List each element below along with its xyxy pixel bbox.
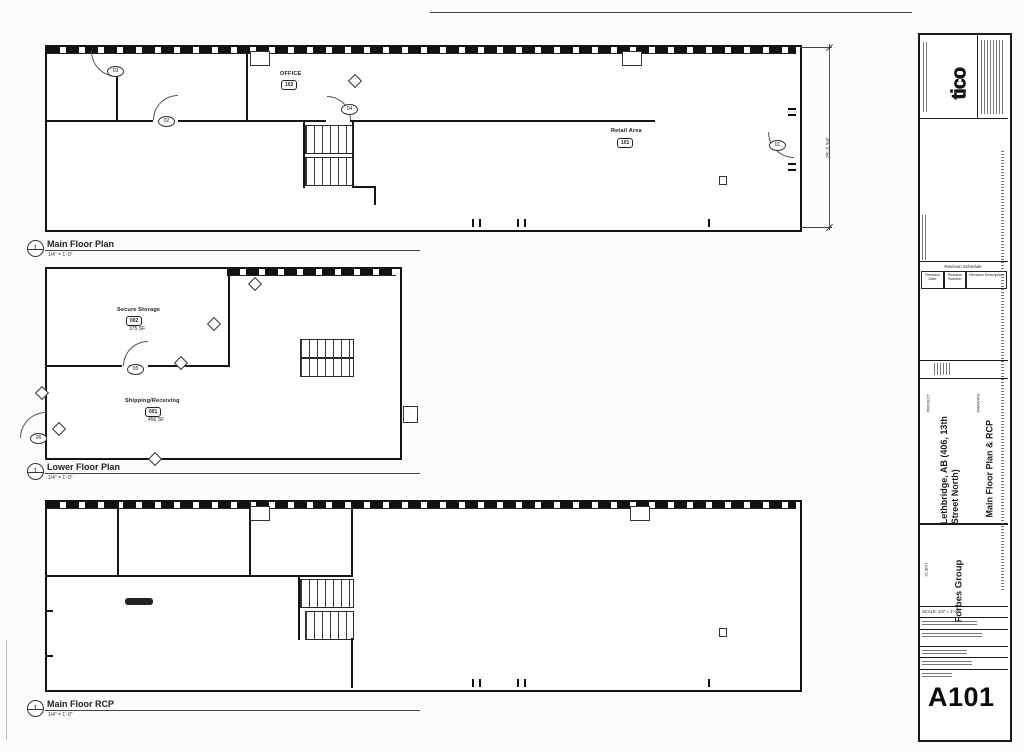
column-marker xyxy=(517,679,519,687)
revision-col-date: Revision Date xyxy=(921,271,944,289)
main-floor-plan-outline xyxy=(45,45,802,232)
revision-col-number: Revision Number xyxy=(944,271,966,289)
wall xyxy=(350,120,655,122)
scale-note: SCALE: 1/4" = 1'-0" xyxy=(922,609,1002,614)
column-marker xyxy=(524,219,526,227)
wall xyxy=(228,269,230,367)
column-marker xyxy=(788,108,796,110)
room-tag: 102 xyxy=(281,80,297,90)
exterior-wall-hatch xyxy=(227,269,396,276)
door-tag: 05 xyxy=(127,364,144,375)
title-block-divider xyxy=(918,657,1008,658)
view-scale: 1/4" = 1'-0" xyxy=(48,252,72,258)
revision-schedule-header: Revision Schedule xyxy=(920,264,1006,269)
stair-flight xyxy=(305,125,353,154)
fixture-symbol: · xyxy=(403,406,418,423)
column-marker xyxy=(472,219,474,227)
view-callout-circle: 1 xyxy=(27,240,44,257)
view-title-underline xyxy=(45,473,420,474)
room-tag: 001 xyxy=(145,407,161,417)
fine-print-row xyxy=(922,672,952,677)
door-tag: 01 xyxy=(769,140,786,151)
title-block-divider xyxy=(918,118,1008,119)
project-label: PROJECT xyxy=(926,383,931,413)
room-tag: 002 xyxy=(126,316,142,326)
door-tag: 03 xyxy=(107,66,124,77)
column-marker xyxy=(479,219,481,227)
door-tag: 04 xyxy=(341,104,358,115)
view-title-underline xyxy=(45,250,420,251)
wall xyxy=(351,502,353,576)
room-tag: 101 xyxy=(617,138,633,148)
wall xyxy=(246,47,248,122)
title-block-divider xyxy=(918,606,1008,607)
column-marker xyxy=(788,163,796,165)
ceiling-symbol xyxy=(719,176,727,185)
room-name: OFFICE xyxy=(280,71,301,77)
view-title: Main Floor Plan xyxy=(47,239,114,249)
view-callout-circle: 1 xyxy=(27,463,44,480)
title-block-divider xyxy=(918,646,1008,647)
ceiling-symbol xyxy=(719,628,727,637)
fine-print-row xyxy=(922,632,982,637)
title-block-divider xyxy=(918,523,1008,525)
stair-flight xyxy=(300,357,354,377)
column-marker xyxy=(788,169,796,171)
column-marker xyxy=(479,679,481,687)
closet-recess xyxy=(630,506,650,521)
title-block-divider xyxy=(918,629,1008,630)
wall xyxy=(117,502,119,576)
sheet-number: A101 xyxy=(928,682,995,713)
column-marker xyxy=(45,655,53,657)
sheet-border-left xyxy=(6,640,7,740)
stair-flight xyxy=(300,579,354,608)
column-marker xyxy=(708,679,710,687)
column-marker xyxy=(524,679,526,687)
room-area: 375 SF xyxy=(129,326,145,332)
fine-print-row xyxy=(922,649,967,654)
wall xyxy=(45,120,153,122)
closet-recess xyxy=(250,506,270,521)
stair-flight xyxy=(300,339,354,359)
fine-print-row xyxy=(922,660,972,665)
company-logo: tico xyxy=(949,40,972,100)
wall xyxy=(45,575,353,577)
view-callout-circle: 1 xyxy=(27,700,44,717)
wall xyxy=(374,186,376,205)
view-title: Lower Floor Plan xyxy=(47,462,120,472)
exterior-wall-hatch xyxy=(47,47,796,54)
room-name: Retail Area xyxy=(611,128,642,134)
door-tag: 02 xyxy=(158,116,175,127)
fine-print-row xyxy=(922,620,977,625)
title-block-divider xyxy=(918,669,1008,670)
wall xyxy=(45,365,122,367)
title-block-divider xyxy=(918,360,1008,361)
door-tag: 06 xyxy=(30,433,47,444)
view-scale: 1/4" = 1'-0" xyxy=(48,712,72,718)
fine-print xyxy=(923,42,928,112)
client-label: CLIENT xyxy=(924,549,929,577)
project-name: Lethbridge, AB (406, 13thStreet North) xyxy=(939,374,962,524)
column-marker xyxy=(517,219,519,227)
column-marker xyxy=(788,114,796,116)
drawing-title: Main Floor Plan & RCP xyxy=(985,373,995,518)
stair-flight xyxy=(305,611,354,640)
exterior-wall-hatch xyxy=(47,502,796,509)
closet-recess xyxy=(250,51,270,66)
project-line2: Street North) xyxy=(950,469,960,524)
drawing-sheet: 03 02 04 01 OFFICE 102 Retail Area 101 2… xyxy=(0,0,1024,752)
closet-recess xyxy=(622,51,642,66)
room-area: 456 SF xyxy=(148,417,164,423)
title-block-divider xyxy=(918,378,1008,379)
main-floor-rcp-outline xyxy=(45,500,802,692)
fine-print xyxy=(934,363,950,375)
wall xyxy=(351,638,353,688)
stair-flight xyxy=(305,157,353,186)
title-block-divider xyxy=(918,261,1008,262)
view-title-underline xyxy=(45,710,420,711)
light-fixture xyxy=(125,598,153,605)
title-block-divider xyxy=(918,617,1008,618)
project-line1: Lethbridge, AB (406, 13th xyxy=(939,416,949,524)
fine-print xyxy=(922,215,927,260)
wall xyxy=(148,365,230,367)
fine-print-address xyxy=(981,40,1005,114)
room-name: Shipping/Receiving xyxy=(125,398,180,404)
room-name: Secure Storage xyxy=(117,307,160,313)
drawing-label: DRAWING xyxy=(976,383,981,413)
fine-print-disclaimer xyxy=(1001,150,1004,590)
view-scale: 1/4" = 1'-0" xyxy=(48,475,72,481)
view-title: Main Floor RCP xyxy=(47,699,114,709)
column-marker xyxy=(45,610,53,612)
title-block-divider xyxy=(977,35,978,118)
column-marker xyxy=(472,679,474,687)
wall xyxy=(116,75,118,122)
dimension-text: 25'-3 3/4" xyxy=(826,137,832,158)
column-marker xyxy=(708,219,710,227)
wall xyxy=(352,186,376,188)
sheet-border-top xyxy=(430,12,912,13)
